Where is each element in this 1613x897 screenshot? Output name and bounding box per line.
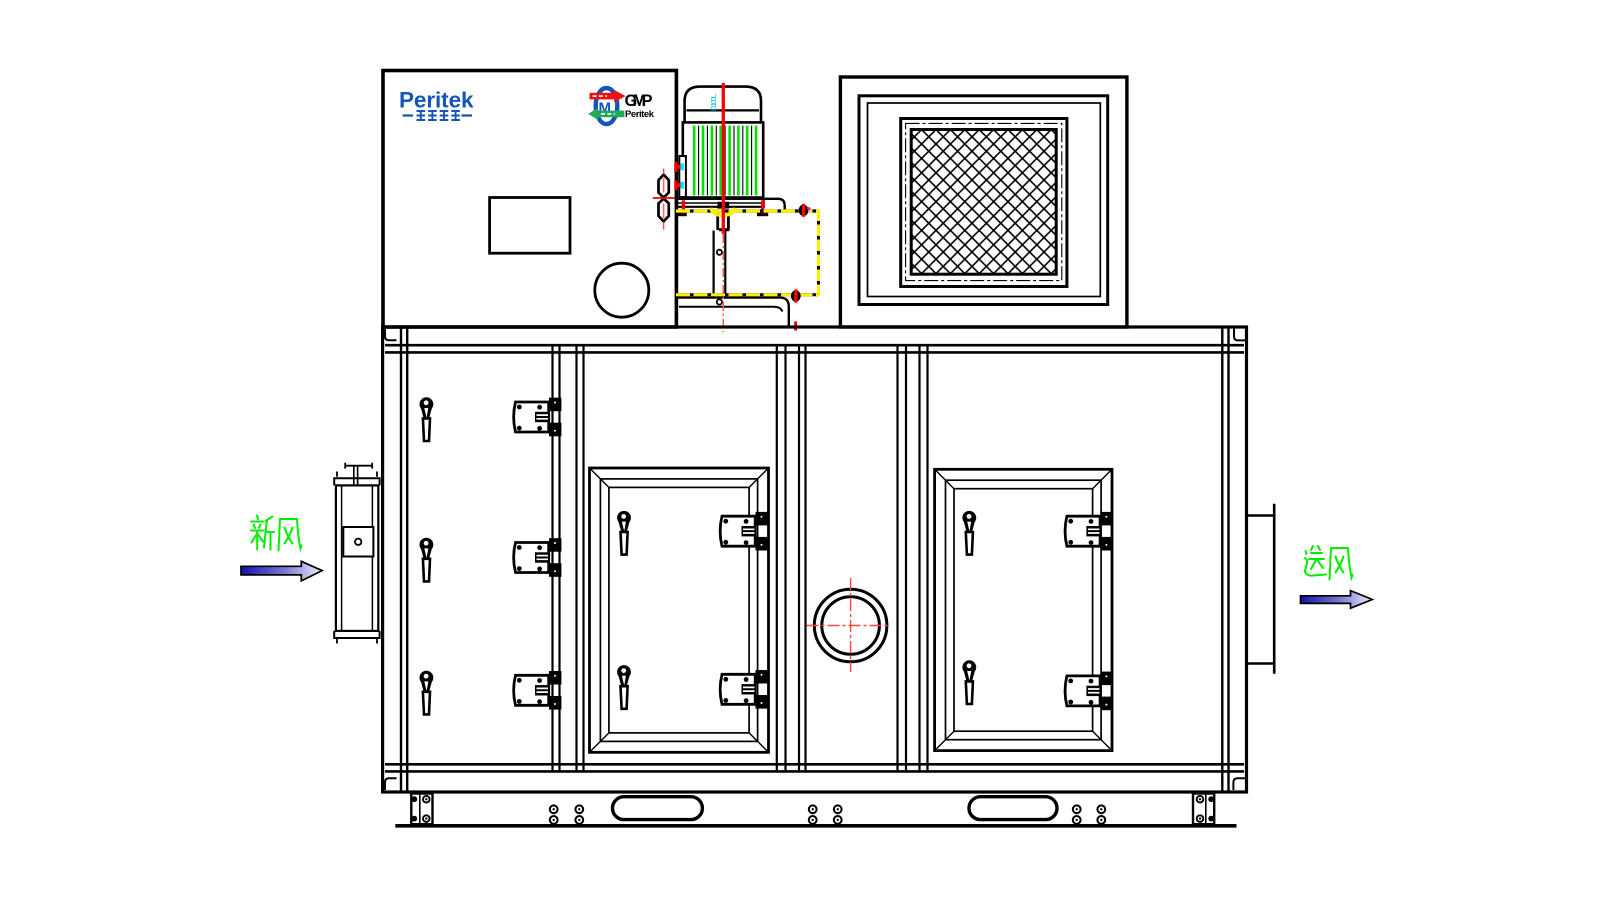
svg-text:D100L: D100L [709, 94, 718, 111]
svg-text:Peritek: Peritek [625, 109, 655, 120]
svg-text:GMP: GMP [625, 92, 653, 110]
svg-text:Peritek: Peritek [399, 88, 474, 113]
